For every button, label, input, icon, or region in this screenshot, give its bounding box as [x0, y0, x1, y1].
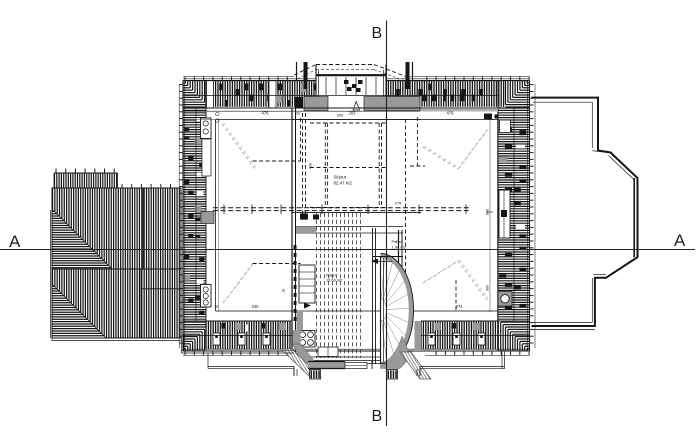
svg-text:Séjour: Séjour: [334, 175, 347, 180]
svg-text:800: 800: [486, 209, 490, 215]
svg-text:B: B: [372, 408, 383, 425]
svg-text:1.98 m2: 1.98 m2: [392, 245, 407, 250]
svg-text:274: 274: [395, 202, 401, 206]
svg-text:82.47 m2: 82.47 m2: [334, 181, 353, 186]
svg-text:203: 203: [349, 111, 357, 116]
svg-text:400: 400: [309, 163, 313, 169]
svg-text:300: 300: [486, 285, 490, 291]
svg-text:A: A: [9, 232, 21, 251]
svg-text:200: 200: [337, 113, 344, 118]
svg-text:A: A: [674, 231, 686, 250]
svg-text:90: 90: [215, 305, 219, 309]
svg-text:18: 18: [282, 289, 286, 293]
svg-text:10.66 m2: 10.66 m2: [326, 278, 342, 283]
svg-text:30: 30: [296, 112, 300, 116]
svg-text:B: B: [372, 25, 383, 42]
svg-text:Palier: Palier: [392, 239, 403, 244]
svg-text:476: 476: [262, 111, 270, 116]
svg-text:340: 340: [252, 304, 260, 309]
svg-text:274: 274: [456, 304, 464, 309]
